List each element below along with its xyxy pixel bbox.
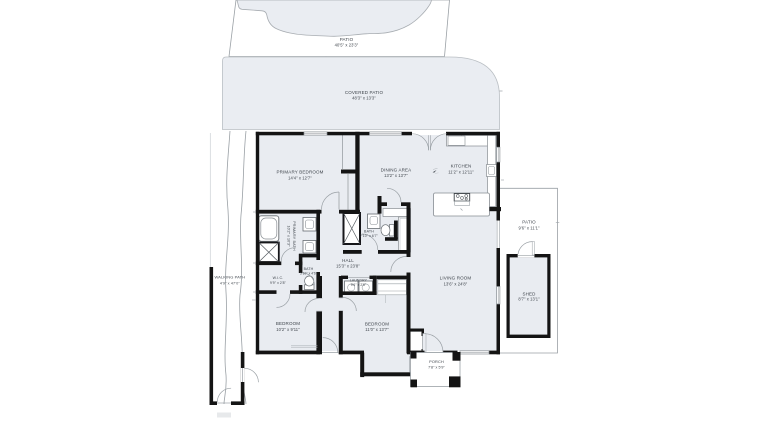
svg-text:SHED: SHED [522,291,536,296]
svg-text:LIVING ROOM: LIVING ROOM [440,276,472,281]
svg-text:COVERED PATIO: COVERED PATIO [345,90,384,95]
svg-text:9'6" x 2'8": 9'6" x 2'8" [351,283,367,287]
svg-text:7'10" x 6'7": 7'10" x 6'7" [360,234,379,238]
svg-text:7'8" x 5'9": 7'8" x 5'9" [428,366,445,370]
svg-text:40'5" x 23'3": 40'5" x 23'3" [335,42,359,47]
svg-text:KITCHEN: KITCHEN [451,164,472,169]
svg-text:PATIO: PATIO [340,37,354,42]
svg-text:5'10" x 4'6": 5'10" x 4'6" [300,272,317,276]
svg-text:11'2" x 12'11": 11'2" x 12'11" [448,169,474,174]
svg-text:15'3" x 23'8": 15'3" x 23'8" [336,264,360,269]
svg-text:BEDROOM: BEDROOM [365,322,389,327]
svg-text:PATIO: PATIO [522,220,536,225]
svg-text:4'9" x 47'0": 4'9" x 47'0" [220,281,240,285]
svg-text:BATH: BATH [364,230,374,234]
svg-text:BEDROOM: BEDROOM [276,321,300,326]
svg-text:14'4" x 12'7": 14'4" x 12'7" [288,176,312,181]
svg-text:W.I.C.: W.I.C. [273,276,284,280]
svg-text:48'3" x 13'3": 48'3" x 13'3" [352,96,376,101]
svg-text:9'6" x 11'1": 9'6" x 11'1" [518,225,540,230]
svg-text:WALKING PATH: WALKING PATH [214,275,245,280]
svg-text:10'2" x 10'3": 10'2" x 10'3" [286,225,290,247]
svg-text:9'9" x 2'8": 9'9" x 2'8" [270,281,287,285]
svg-text:HALL: HALL [342,258,354,263]
svg-text:PRIMARY BATH: PRIMARY BATH [292,221,296,251]
svg-text:8'7" x 13'1": 8'7" x 13'1" [518,297,540,302]
svg-text:LAUNDRY: LAUNDRY [350,278,368,282]
svg-text:BATH: BATH [304,267,314,271]
svg-text:10'2" x 9'11": 10'2" x 9'11" [276,327,300,332]
svg-text:PORCH: PORCH [429,359,444,364]
svg-text:PRIMARY BEDROOM: PRIMARY BEDROOM [276,170,323,175]
svg-text:13'6" x 24'8": 13'6" x 24'8" [444,281,468,286]
svg-text:DINING AREA: DINING AREA [381,168,412,173]
svg-text:13'2" x 13'7": 13'2" x 13'7" [384,173,408,178]
svg-text:11'0" x 13'7": 11'0" x 13'7" [365,327,389,332]
